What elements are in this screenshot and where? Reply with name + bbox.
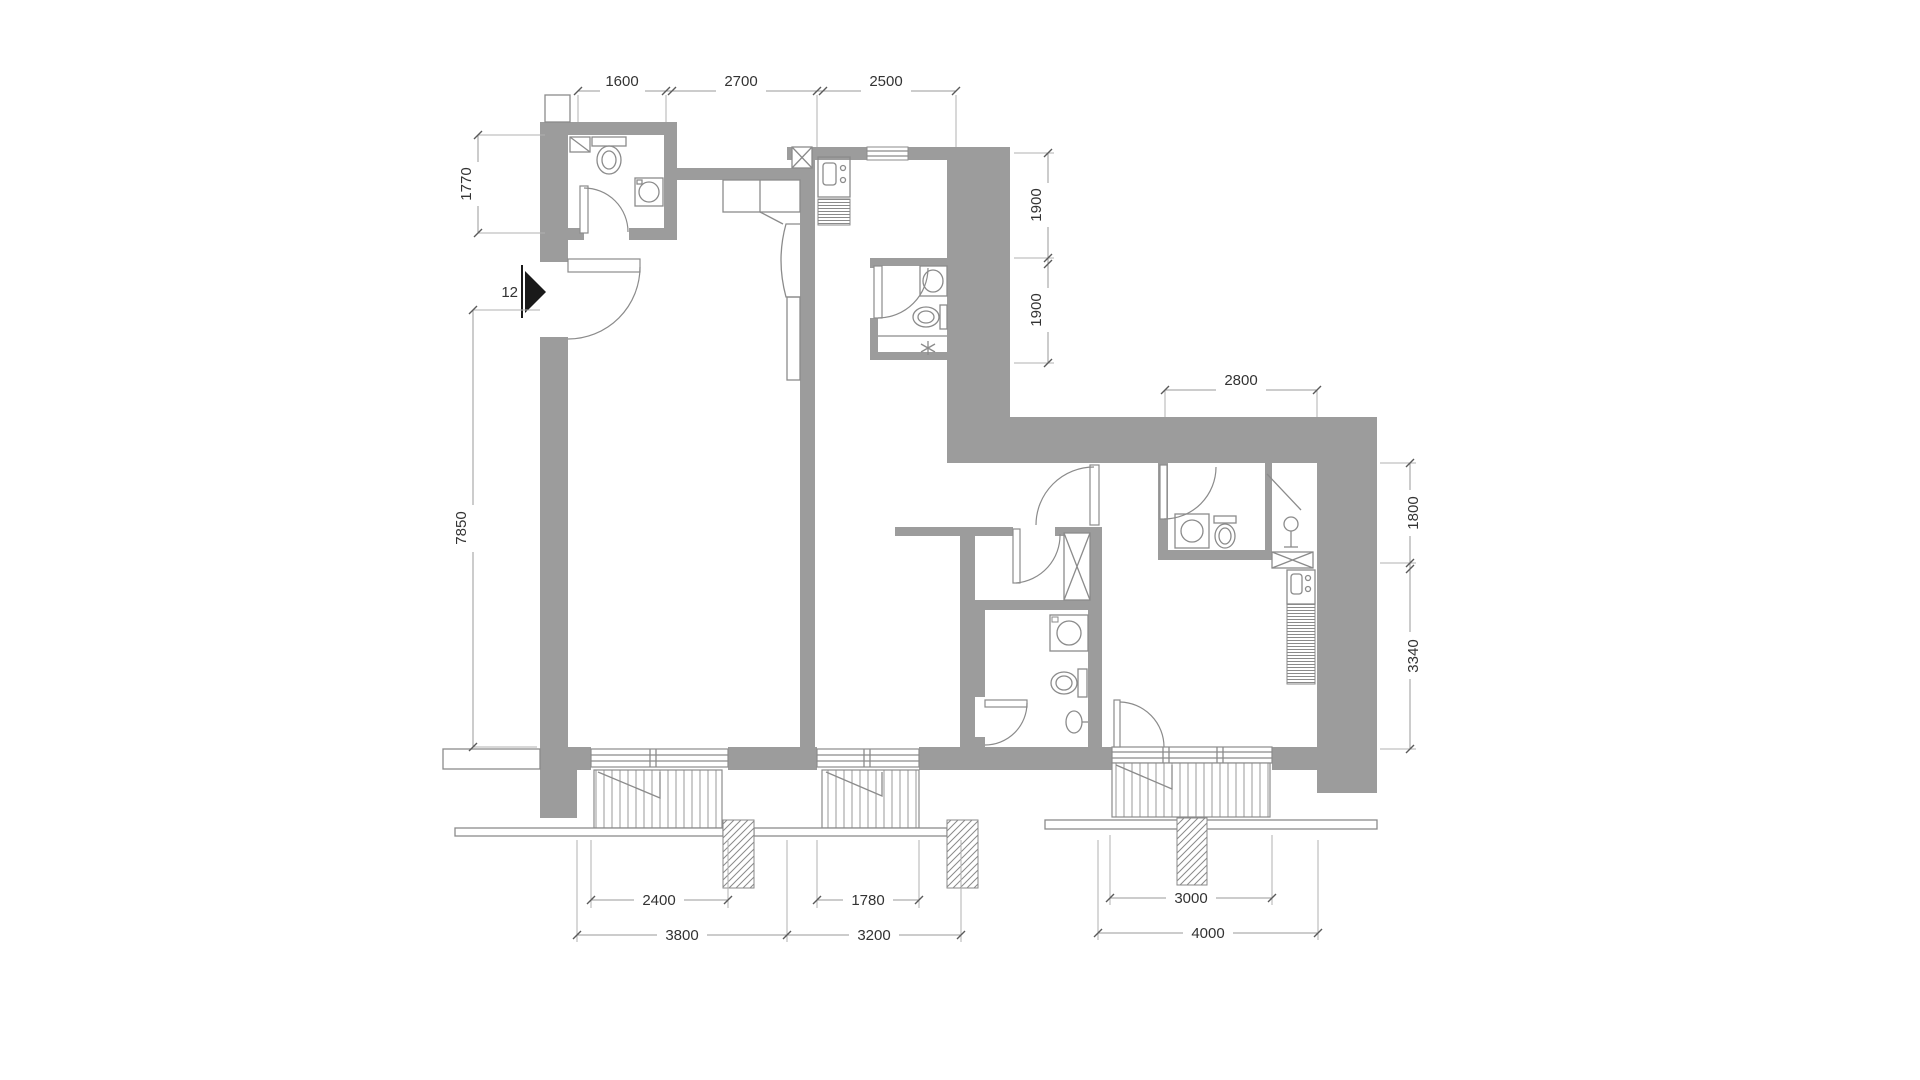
wall-left-upper <box>540 122 568 262</box>
balcony-railing-b <box>822 770 919 828</box>
entry-arrow-icon <box>525 271 546 313</box>
wall-bath2-top <box>975 600 1088 610</box>
dim-middle-2800: 2800 <box>1161 372 1321 417</box>
wall-bath2-left-d <box>975 737 985 747</box>
door-swing-bath-b2 <box>985 703 1027 745</box>
dim-label: 1600 <box>605 73 638 90</box>
window-a <box>591 749 728 767</box>
cabinet <box>787 297 800 380</box>
floor-plan-drawing: 12 <box>0 0 1920 1080</box>
dim-label: 3200 <box>857 927 890 944</box>
wall-bath-a-bottom-r <box>629 228 677 240</box>
wall-bottom-2 <box>728 747 817 770</box>
dim-label: 1800 <box>1405 496 1422 529</box>
dim-label: 1780 <box>851 892 884 909</box>
toilet-tank <box>592 137 626 146</box>
balcony-railing-c <box>1112 763 1270 817</box>
dim-right-lower: 1800 3340 <box>1380 459 1422 753</box>
door-swing-bath-a <box>584 188 628 232</box>
dim-bottom-bays: 3800 3200 4000 <box>573 925 1322 944</box>
toilet-bowl <box>1051 672 1077 694</box>
tall-cabinet <box>1287 604 1315 684</box>
door-leaf-bath-c <box>1160 465 1167 519</box>
dim-right-upper: 1900 1900 <box>1014 149 1054 367</box>
window-c <box>1112 747 1272 763</box>
duct-shaft-icon <box>1064 533 1090 600</box>
dim-left-upper: 1770 <box>458 131 545 237</box>
wall-c-right-outer <box>1317 463 1377 793</box>
dim-label: 2800 <box>1224 372 1257 389</box>
roof-shaft-box <box>545 95 570 122</box>
fridge <box>781 224 800 297</box>
dim-label: 7850 <box>453 511 470 544</box>
floor-plan-page: 12 <box>0 0 1920 1080</box>
counter <box>723 180 800 212</box>
door-leaf-bath-b2 <box>985 700 1027 707</box>
bathroom-c <box>1160 465 1301 548</box>
pier-hatched-3 <box>1177 818 1207 885</box>
wall-hall-thin-l <box>895 527 1013 536</box>
dim-bottom-windows: 2400 1780 3000 <box>587 890 1276 909</box>
door-leaf-unit-c <box>1090 465 1099 525</box>
toilet-tank <box>1078 669 1087 697</box>
entrance: 12 <box>501 259 640 339</box>
bathroom-a <box>570 137 663 233</box>
wall-bottom-1 <box>540 747 591 770</box>
window-top <box>867 147 908 160</box>
door-leaf-bedroom <box>1013 529 1020 583</box>
dim-label: 1900 <box>1028 188 1045 221</box>
wall-bath1-top <box>870 258 957 266</box>
balcony-door-c <box>1114 700 1164 747</box>
toilet-bowl <box>913 307 939 327</box>
wall-bottom-4 <box>1272 747 1377 770</box>
door-leaf-bath-b1 <box>874 266 882 318</box>
wall-bath2-left-u <box>975 610 985 697</box>
kitchen-a <box>723 180 800 380</box>
toilet-tank <box>940 305 947 329</box>
dim-label: 1900 <box>1028 293 1045 326</box>
toilet-bowl <box>597 146 621 174</box>
bathroom-b1 <box>874 266 947 355</box>
dim-label: 1770 <box>458 167 475 200</box>
wall-left-lower <box>540 337 568 747</box>
wall-bath-c-bottom <box>1158 550 1265 560</box>
sill-b <box>754 828 947 836</box>
pedestal-sink <box>1284 517 1298 547</box>
door-swing-bath-c <box>1164 467 1216 519</box>
vent-shaft-icon <box>792 147 812 168</box>
dim-label: 3340 <box>1405 639 1422 672</box>
dim-label: 2500 <box>869 73 902 90</box>
sill-c <box>1045 820 1377 829</box>
entry-door-leaf <box>568 259 640 272</box>
dim-label: 3800 <box>665 927 698 944</box>
bathroom-b2 <box>985 615 1088 745</box>
toilet-tank <box>1214 516 1236 523</box>
hand-basin <box>1066 711 1082 733</box>
door-leaf-bath-a <box>580 186 588 233</box>
appliance <box>818 199 850 225</box>
walls <box>540 122 1377 818</box>
pier-hatched-2 <box>947 820 978 888</box>
unit-number-label: 12 <box>501 284 518 301</box>
dim-label: 2700 <box>724 73 757 90</box>
sill-left-exterior <box>443 749 540 769</box>
kitchen-c <box>1272 552 1315 684</box>
wall-top-left <box>540 122 677 135</box>
shower-door <box>1267 474 1301 510</box>
door-swing-unit-c <box>1036 467 1094 525</box>
wall-bedroom-right <box>960 536 975 747</box>
door-swing-bedroom <box>1016 534 1060 583</box>
dim-top-chain: 1600 2700 2500 <box>574 73 960 147</box>
sill-a <box>455 828 723 836</box>
pier-bottom-left <box>540 770 577 818</box>
dim-label: 4000 <box>1191 925 1224 942</box>
wall-a-b-divider <box>800 147 815 747</box>
dim-label: 2400 <box>642 892 675 909</box>
wall-bath1-bottom <box>870 352 957 360</box>
wall-bath-a-right <box>664 122 677 240</box>
washer <box>1175 514 1209 548</box>
wall-b-right-outer <box>947 147 1010 463</box>
entry-door-swing <box>568 267 640 339</box>
wall-c-top <box>1010 417 1377 463</box>
wall-bottom-3 <box>919 747 1112 770</box>
dim-label: 3000 <box>1174 890 1207 907</box>
window-b <box>817 749 919 767</box>
dim-left-main: 7850 <box>453 306 540 751</box>
wall-kitchen-a-top <box>677 168 800 180</box>
wall-bath-a-bottom-l <box>540 228 584 240</box>
duct-shaft-icon <box>1272 552 1313 568</box>
